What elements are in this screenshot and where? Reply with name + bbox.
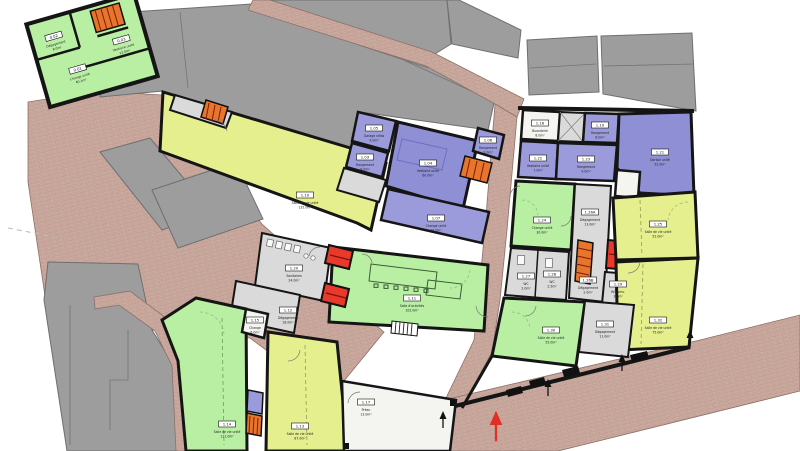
svg-text:Buanderie: Buanderie: [532, 129, 548, 133]
svg-text:8.0m²: 8.0m²: [360, 168, 370, 172]
svg-text:1.29: 1.29: [614, 282, 623, 287]
svg-text:WC pers.: WC pers.: [611, 290, 625, 294]
svg-text:Salle d'activités: Salle d'activités: [400, 304, 425, 308]
svg-text:26.0m²: 26.0m²: [430, 229, 442, 233]
svg-text:1.15: 1.15: [251, 318, 260, 323]
svg-text:1.07: 1.07: [432, 216, 441, 221]
svg-text:13.0m²: 13.0m²: [584, 223, 596, 227]
svg-text:1.31: 1.31: [601, 322, 610, 327]
svg-text:Salle de vie unité: Salle de vie unité: [292, 201, 319, 205]
svg-text:WC: WC: [549, 280, 554, 284]
floor-plan-canvas: 0.01Change unité40.1m²0.02Dégagement8.0m…: [0, 0, 800, 451]
svg-text:8.0m²: 8.0m²: [535, 134, 545, 138]
staircase-east-top: [558, 112, 585, 142]
svg-text:1.12: 1.12: [284, 308, 293, 313]
svg-text:1.22: 1.22: [534, 156, 543, 161]
svg-text:1.19: 1.19: [596, 123, 605, 128]
svg-text:1.27: 1.27: [522, 274, 531, 279]
svg-text:52.0m²: 52.0m²: [652, 235, 664, 239]
svg-text:1.26B: 1.26B: [582, 278, 593, 283]
svg-text:Garage vélos: Garage vélos: [364, 134, 385, 138]
svg-text:1.30: 1.30: [547, 328, 556, 333]
svg-text:Dégagement: Dégagement: [578, 286, 599, 290]
svg-text:Rangement: Rangement: [577, 165, 596, 169]
svg-text:8.0m²: 8.0m²: [595, 136, 605, 140]
svg-text:Change unité: Change unité: [532, 226, 553, 230]
svg-text:Rangement: Rangement: [591, 131, 610, 135]
svg-text:1.20: 1.20: [290, 266, 299, 271]
svg-text:13.0m²: 13.0m²: [360, 413, 372, 417]
svg-text:1.23: 1.23: [582, 157, 591, 162]
svg-text:2.0m²: 2.0m²: [583, 291, 593, 295]
svg-text:7.0m²: 7.0m²: [533, 169, 543, 173]
room-1-30: [492, 298, 585, 366]
corridor-east-south: [579, 301, 634, 357]
svg-text:Sanitaires: Sanitaires: [286, 274, 302, 278]
svg-text:1.06: 1.06: [484, 138, 493, 143]
svg-text:Salle de vie unité: Salle de vie unité: [645, 326, 672, 330]
svg-text:2.0m²: 2.0m²: [521, 287, 531, 291]
svg-text:135.0m²: 135.0m²: [298, 206, 312, 210]
svg-text:1.26A: 1.26A: [584, 210, 595, 215]
svg-text:Vestiaire unité: Vestiaire unité: [527, 164, 549, 168]
svg-text:1.03: 1.03: [361, 155, 370, 160]
svg-text:Rangement: Rangement: [479, 146, 498, 150]
svg-text:30.0m²: 30.0m²: [536, 231, 548, 235]
svg-text:3.0m²: 3.0m²: [613, 295, 623, 299]
svg-text:1.32: 1.32: [654, 318, 663, 323]
svg-text:102.0m²: 102.0m²: [405, 309, 419, 313]
svg-text:Dégagement: Dégagement: [580, 218, 601, 222]
svg-text:6.0m²: 6.0m²: [250, 331, 260, 335]
svg-text:1.24: 1.24: [538, 218, 547, 223]
svg-text:9.0m²: 9.0m²: [483, 151, 493, 155]
svg-text:11.0m²: 11.0m²: [599, 335, 611, 339]
svg-text:1.16: 1.16: [536, 121, 545, 126]
svg-text:Salle de vie unité: Salle de vie unité: [645, 230, 672, 234]
svg-text:111.0m²: 111.0m²: [220, 435, 234, 439]
svg-text:Préau: Préau: [362, 408, 371, 412]
floor-plan-page: 0.01Change unité40.1m²0.02Dégagement8.0m…: [0, 0, 800, 451]
room-1-24: [511, 181, 575, 250]
svg-text:Salle de vie unité: Salle de vie unité: [287, 432, 314, 436]
svg-text:55.0m²: 55.0m²: [545, 341, 557, 345]
svg-text:Dortoir unité: Dortoir unité: [650, 158, 670, 162]
svg-text:1.05: 1.05: [370, 126, 379, 131]
svg-text:18.0m²: 18.0m²: [282, 321, 294, 325]
small-cell: [615, 170, 640, 198]
svg-text:1.13: 1.13: [296, 424, 305, 429]
svg-text:75.0m²: 75.0m²: [652, 331, 664, 335]
post: [450, 400, 455, 406]
staircase-south: [246, 390, 263, 436]
svg-text:2.5m²: 2.5m²: [547, 285, 557, 289]
svg-text:9.0m²: 9.0m²: [369, 139, 379, 143]
svg-text:Vestiaire unité: Vestiaire unité: [417, 169, 439, 173]
svg-text:Dégagement: Dégagement: [278, 316, 299, 320]
svg-text:Rangement: Rangement: [356, 163, 375, 167]
svg-text:1.21: 1.21: [656, 150, 665, 155]
svg-text:Change unité: Change unité: [426, 224, 447, 228]
svg-text:24.0m²: 24.0m²: [288, 279, 300, 283]
svg-text:1.17: 1.17: [362, 400, 371, 405]
svg-text:52.0m²: 52.0m²: [654, 163, 666, 167]
svg-text:Salle de vie unité: Salle de vie unité: [538, 336, 565, 340]
svg-text:1.28: 1.28: [548, 272, 557, 277]
svg-text:1.25: 1.25: [654, 222, 663, 227]
svg-text:87.0m²: 87.0m²: [294, 437, 306, 441]
svg-text:Change: Change: [249, 326, 261, 330]
post: [344, 443, 349, 449]
svg-text:60.0m²: 60.0m²: [422, 174, 434, 178]
svg-text:1.10: 1.10: [301, 193, 310, 198]
svg-text:Dégagement: Dégagement: [595, 330, 616, 334]
svg-text:9.0m²: 9.0m²: [581, 170, 591, 174]
svg-text:Salle de vie unité: Salle de vie unité: [214, 430, 241, 434]
svg-text:WC: WC: [523, 282, 528, 286]
svg-text:1.14: 1.14: [223, 422, 232, 427]
svg-text:1.04: 1.04: [424, 161, 433, 166]
svg-text:1.11: 1.11: [408, 296, 417, 301]
